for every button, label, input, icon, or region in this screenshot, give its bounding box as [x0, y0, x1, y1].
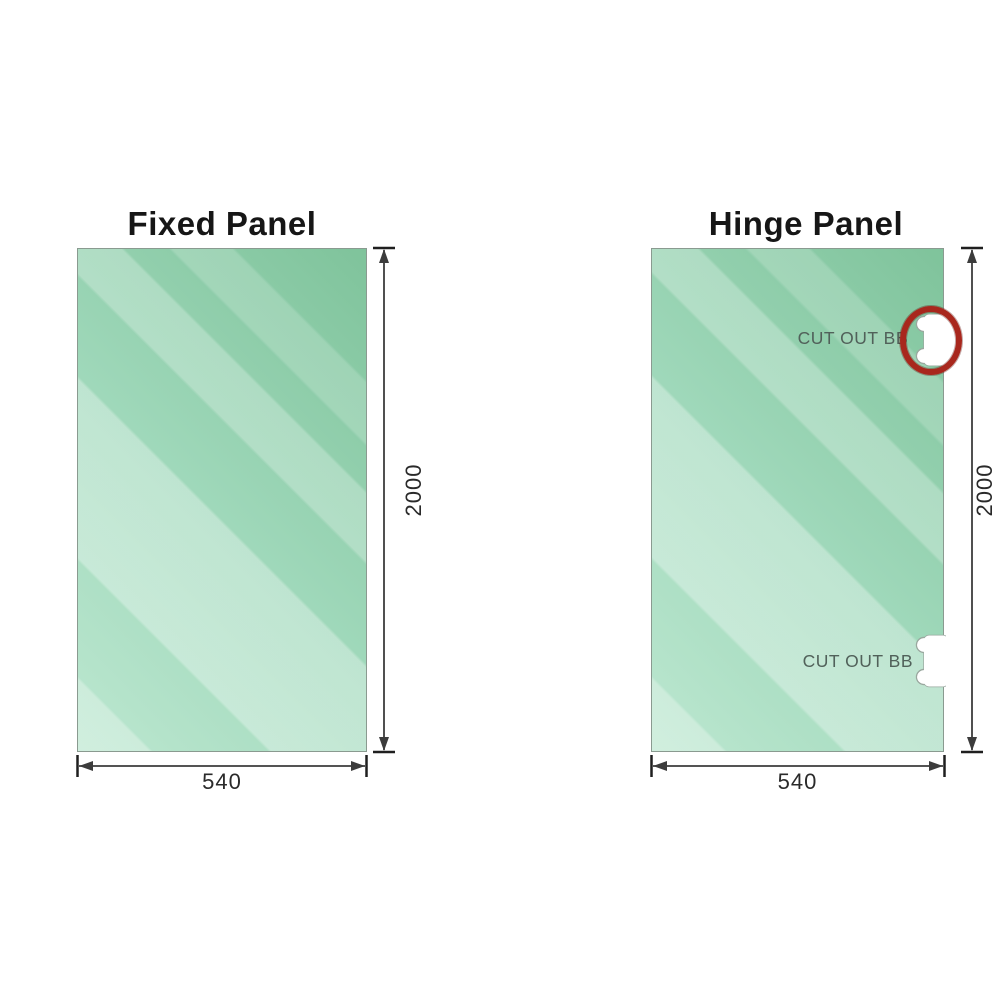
- arrow-down-icon: [967, 737, 977, 751]
- hinge-panel-glass: [651, 248, 944, 752]
- fixed-height-dimension: [370, 246, 398, 754]
- arrow-up-icon: [379, 249, 389, 263]
- hinge-panel-title: Hinge Panel: [658, 205, 954, 243]
- hinge-height-label: 2000: [972, 450, 998, 530]
- hinge-cutout-bottom: [913, 633, 946, 689]
- cutout-label-bottom: CUT OUT BB: [698, 650, 913, 672]
- fixed-width-label: 540: [77, 769, 367, 795]
- arrow-up-icon: [967, 249, 977, 263]
- fixed-panel-title: Fixed Panel: [77, 205, 367, 243]
- panel-diagram: Fixed Panel 2000 540 Hinge Panel CUT OUT…: [0, 0, 1000, 1000]
- hinge-width-label: 540: [651, 769, 944, 795]
- fixed-height-label: 2000: [401, 450, 427, 530]
- highlight-circle-icon: [900, 306, 962, 375]
- cutout-label-top: CUT OUT BB: [693, 327, 908, 349]
- arrow-down-icon: [379, 737, 389, 751]
- fixed-panel-glass: [77, 248, 367, 752]
